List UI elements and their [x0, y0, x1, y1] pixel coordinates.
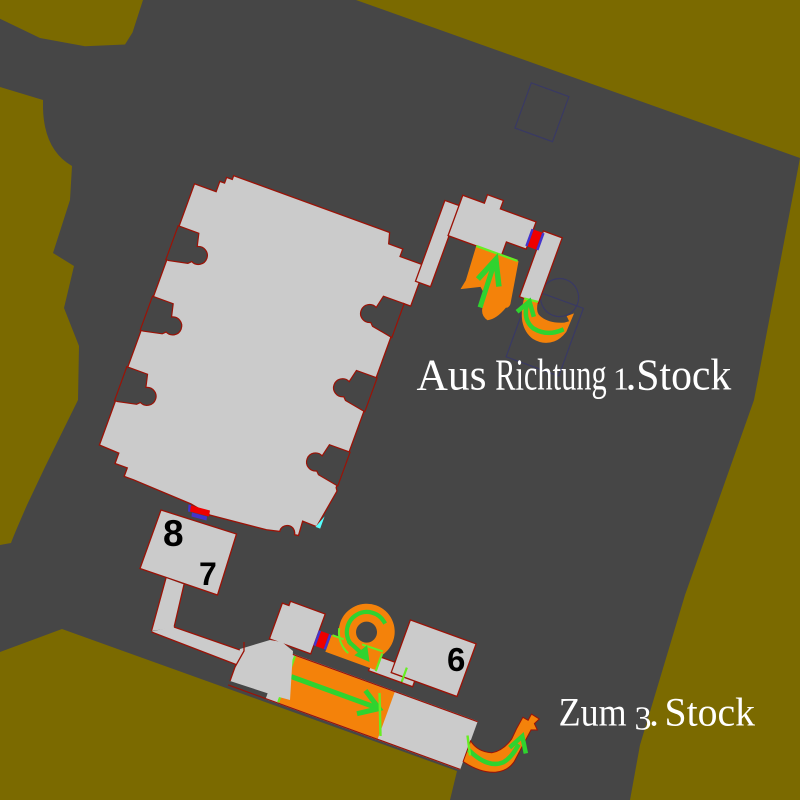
svg-text:.: . [649, 690, 659, 735]
svg-text:7: 7 [199, 556, 217, 592]
svg-text:Stock: Stock [636, 351, 731, 400]
svg-text:.: . [626, 351, 637, 400]
svg-text:Aus: Aus [417, 351, 487, 400]
svg-text:Stock: Stock [665, 690, 756, 735]
svg-text:Richtung: Richtung [495, 351, 607, 400]
svg-text:Zum: Zum [559, 690, 627, 735]
svg-text:8: 8 [163, 513, 184, 554]
svg-text:6: 6 [447, 641, 465, 678]
